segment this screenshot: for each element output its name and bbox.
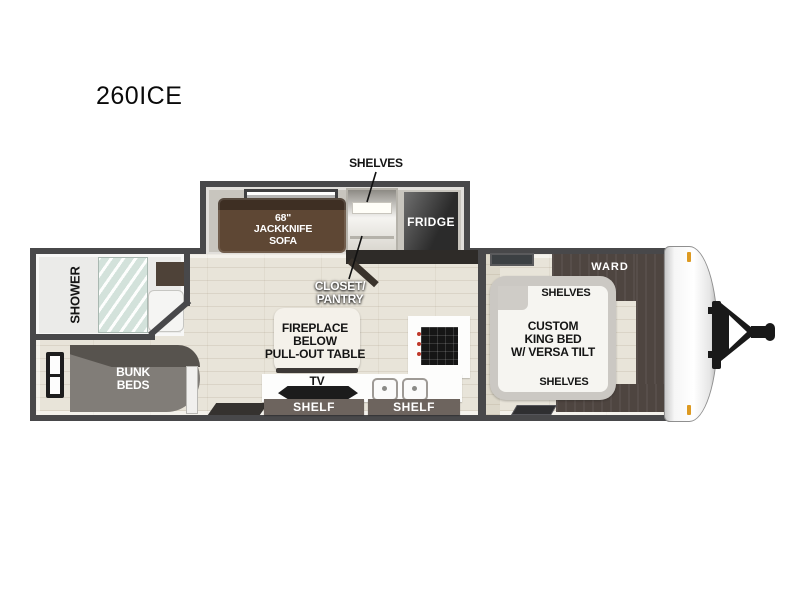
sink-right-drain <box>412 386 417 391</box>
stove-knob-3 <box>417 352 421 356</box>
sofa-label-line3: SOFA <box>222 236 344 247</box>
stove-knob-2 <box>417 342 421 346</box>
closet-label: CLOSET/ PANTRY <box>300 280 380 306</box>
closet-shelf <box>352 202 392 214</box>
sofa-label: 68" JACKKNIFE SOFA <box>222 213 344 247</box>
entry-partition <box>186 366 198 414</box>
ward-label: WARD <box>578 262 642 274</box>
fireplace-label-line3: PULL-OUT TABLE <box>245 348 385 361</box>
marker-light-bottom <box>687 405 691 415</box>
floorplan-canvas: 260ICE 68" JACKKNIFE SOFA FRIDGE SHELVES… <box>0 0 800 600</box>
island-front-edge <box>276 368 358 373</box>
shower-label-wrap: SHOWER <box>54 255 98 335</box>
marker-light-top <box>687 252 691 262</box>
sofa-label-line2: JACKKNIFE <box>222 224 344 235</box>
floor-vent <box>511 405 557 415</box>
sink-left <box>372 378 398 401</box>
king-bed-label-line1: CUSTOM <box>490 320 616 333</box>
fridge-label: FRIDGE <box>404 216 458 229</box>
stove-cooktop <box>421 327 458 365</box>
bed-shelves-bottom-label: SHELVES <box>522 377 606 389</box>
fireplace-label-line2: BELOW <box>245 335 385 348</box>
shelves-pointer-label: SHELVES <box>340 157 412 170</box>
hitch-coupler-head <box>765 323 775 341</box>
hitch-bracket-bar <box>712 301 721 369</box>
wall-bedroom-left <box>478 254 486 415</box>
bed-shelves-top-label: SHELVES <box>524 288 608 300</box>
sink-left-drain <box>382 386 387 391</box>
bunk-window <box>46 352 64 398</box>
tv <box>278 386 358 399</box>
sink-right <box>402 378 428 401</box>
shower-glass <box>98 257 148 333</box>
closet-lower-shelf <box>350 236 394 239</box>
model-number: 260ICE <box>96 82 182 111</box>
bath-cabinet <box>156 262 186 286</box>
stove-knob-1 <box>417 332 421 336</box>
hitch-tongue <box>705 295 780 375</box>
closet-label-line1: CLOSET/ <box>300 280 380 293</box>
bunk-window-mullion <box>50 374 60 377</box>
shower-label: SHOWER <box>69 266 83 323</box>
overhead-cabinet <box>346 250 478 264</box>
bunk-label: BUNK BEDS <box>93 366 173 392</box>
shelf-left-label: SHELF <box>264 401 364 414</box>
wall-bathroom-bottom <box>30 334 155 340</box>
bunk-label-line1: BUNK <box>93 366 173 379</box>
entry-step-mat <box>208 403 268 415</box>
bunk-label-line2: BEDS <box>93 379 173 392</box>
wall-bottom <box>30 415 692 421</box>
fireplace-label-line1: FIREPLACE <box>245 322 385 335</box>
bedroom-window <box>490 253 534 266</box>
king-bed-label-line2: KING BED <box>490 333 616 346</box>
fireplace-label: FIREPLACE BELOW PULL-OUT TABLE <box>245 322 385 361</box>
shelf-right-label: SHELF <box>368 401 460 414</box>
closet-label-line2: PANTRY <box>300 293 380 306</box>
king-bed-label: CUSTOM KING BED W/ VERSA TILT <box>490 320 616 359</box>
closet-pantry-unit <box>346 188 398 254</box>
king-bed-label-line3: W/ VERSA TILT <box>490 346 616 359</box>
